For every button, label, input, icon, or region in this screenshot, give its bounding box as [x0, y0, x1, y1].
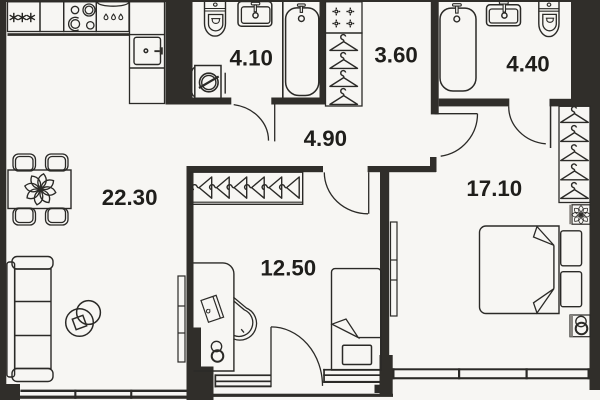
svg-text:17.10: 17.10: [466, 176, 522, 201]
svg-text:12.50: 12.50: [260, 255, 316, 280]
svg-text:22.30: 22.30: [102, 185, 158, 210]
svg-text:4.10: 4.10: [229, 45, 272, 70]
svg-text:4.40: 4.40: [506, 52, 549, 77]
svg-text:4.90: 4.90: [304, 126, 347, 151]
svg-text:3.60: 3.60: [374, 42, 417, 67]
